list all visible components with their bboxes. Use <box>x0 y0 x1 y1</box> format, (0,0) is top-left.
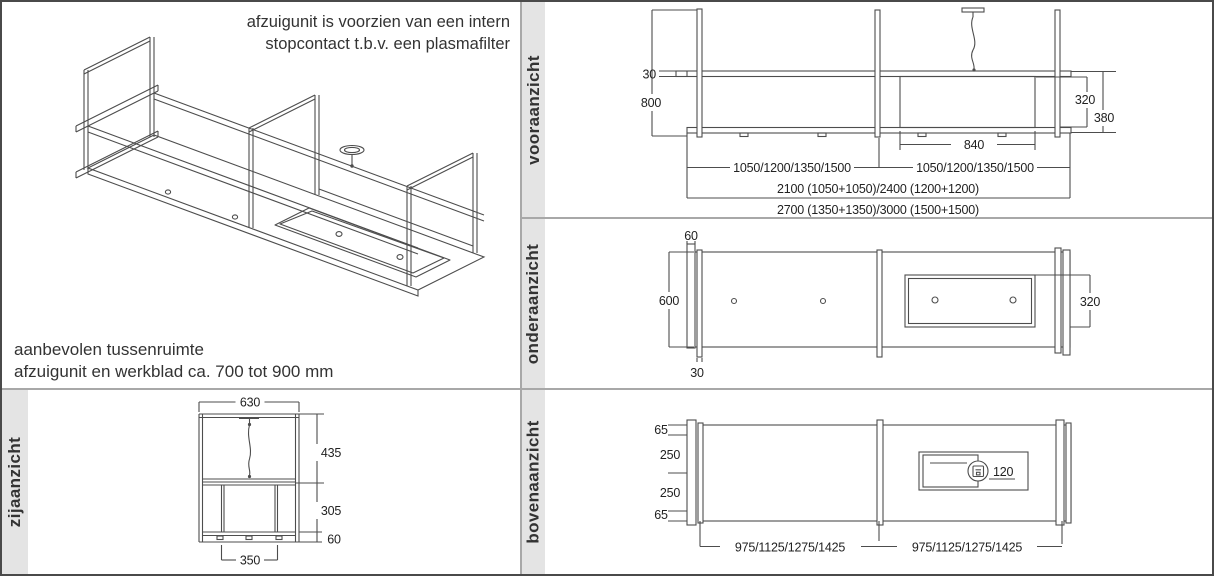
dim-30-front: 30 <box>642 68 656 82</box>
dim-320-front: 320 <box>1075 93 1096 107</box>
dim-800: 800 <box>641 96 662 110</box>
side-view-label-strip: zijaanzicht <box>2 390 28 574</box>
dim-250-bottom: 250 <box>660 486 681 500</box>
side-view-drawing: 630 435 305 60 350 <box>28 390 521 574</box>
dim-60-bottom: 60 <box>684 229 698 243</box>
dim-65-bottom: 65 <box>654 508 668 522</box>
dim-65-top: 65 <box>654 423 668 437</box>
dim-600: 600 <box>659 294 680 308</box>
top-view-label: bovenaanzicht <box>524 420 544 543</box>
bottom-view-label-strip: onderaanzicht <box>522 219 545 388</box>
dim-row-left: 1050/1200/1350/1500 <box>733 161 851 175</box>
dim-top-row-left: 975/1125/1275/1425 <box>735 541 845 555</box>
pendant-cord-side-icon <box>239 419 259 479</box>
front-view-label: vooraanzicht <box>524 55 544 165</box>
side-view-label: zijaanzicht <box>5 437 25 527</box>
dim-435: 435 <box>321 446 342 460</box>
pendant-cord-icon <box>962 8 984 72</box>
bottom-view-label: onderaanzicht <box>524 243 544 363</box>
dim-top-row-right: 975/1125/1275/1425 <box>912 541 1022 555</box>
top-view-label-strip: bovenaanzicht <box>522 390 545 574</box>
technical-drawing-page: vooraanzicht onderaanzicht bovenaanzicht… <box>0 0 1214 576</box>
dim-250-top: 250 <box>660 448 681 462</box>
dim-120: 120 <box>993 465 1014 479</box>
top-view-drawing: 65 250 250 65 120 975/1125/1275/1425 975… <box>545 390 1214 574</box>
pendant-mount-icon <box>340 146 364 168</box>
bottom-view-drawing: 60 600 30 320 <box>545 219 1214 388</box>
isometric-drawing <box>2 2 520 388</box>
dim-380: 380 <box>1094 111 1115 125</box>
dim-840: 840 <box>964 138 985 152</box>
dim-305: 305 <box>321 504 342 518</box>
dim-320-bottom: 320 <box>1080 295 1101 309</box>
dim-60-side: 60 <box>327 533 341 547</box>
dim-row-total-a: 2100 (1050+1050)/2400 (1200+1200) <box>777 182 979 196</box>
dim-row-total-b: 2700 (1350+1350)/3000 (1500+1500) <box>777 203 979 217</box>
front-view-drawing: 800 30 320 380 840 1050/1200/1350/1500 1… <box>545 2 1214 217</box>
front-view-label-strip: vooraanzicht <box>522 2 545 217</box>
dim-30-bottom: 30 <box>690 366 704 380</box>
dim-350: 350 <box>240 554 261 568</box>
dim-row-right: 1050/1200/1350/1500 <box>916 161 1034 175</box>
dim-630: 630 <box>240 396 261 410</box>
